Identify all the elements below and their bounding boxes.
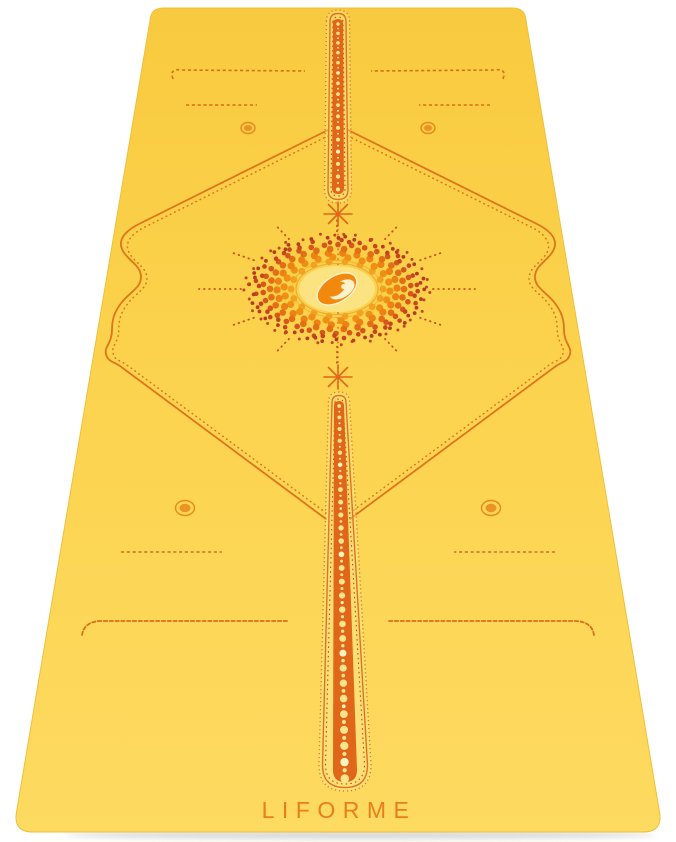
- sun-center: [292, 261, 382, 318]
- top-center-line: [325, 10, 352, 203]
- yoga-mat-illustration: LIFORME: [0, 0, 676, 842]
- foot-end-dot: [180, 504, 191, 512]
- brand-wordmark: LIFORME: [262, 797, 417, 823]
- product-photo: LIFORME: [0, 0, 676, 842]
- head-end-dot: [244, 125, 252, 131]
